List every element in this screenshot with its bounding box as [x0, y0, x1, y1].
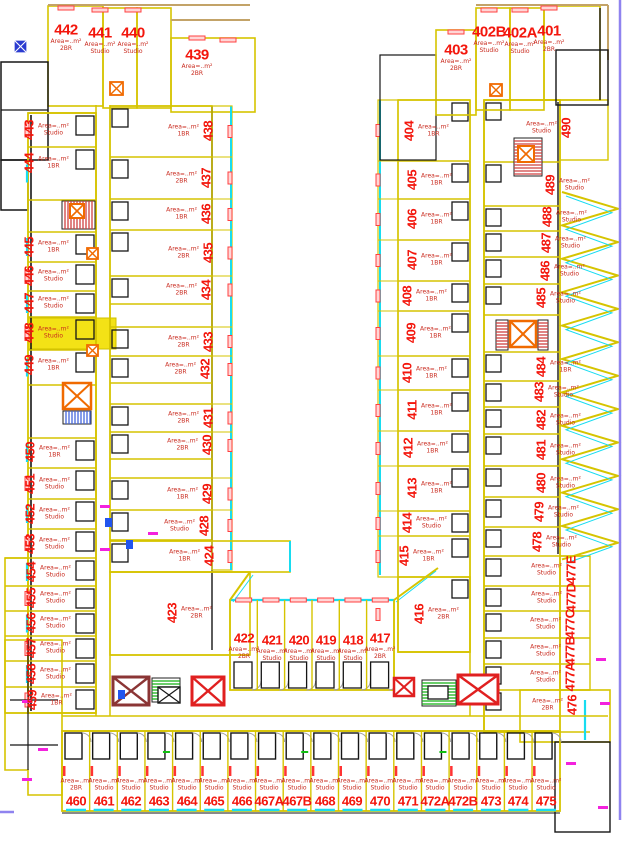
elevator-icon — [87, 345, 98, 356]
elevator-icon — [63, 383, 91, 409]
stairs-icon — [63, 411, 91, 424]
elevator-icon — [394, 678, 414, 696]
elevator-icon — [510, 321, 536, 347]
highlight-unit-448 — [28, 318, 116, 349]
stairs-icon — [496, 320, 508, 350]
elevator-icon — [110, 82, 123, 95]
elevator-icon — [70, 204, 84, 218]
elevator-icon — [87, 248, 98, 259]
elevator-icon — [192, 677, 224, 705]
shaft-icon — [14, 40, 27, 53]
elevator-icon — [490, 84, 502, 96]
stairs-icon — [538, 320, 548, 350]
shaft-icon — [158, 687, 180, 703]
floor-plan-canvas: 442Area=..m²2BR441Area=..m²Studio440Area… — [0, 0, 626, 847]
floor-plan-drawing — [0, 0, 626, 847]
elevator-icon — [458, 675, 498, 704]
elevator-icon — [518, 146, 534, 162]
